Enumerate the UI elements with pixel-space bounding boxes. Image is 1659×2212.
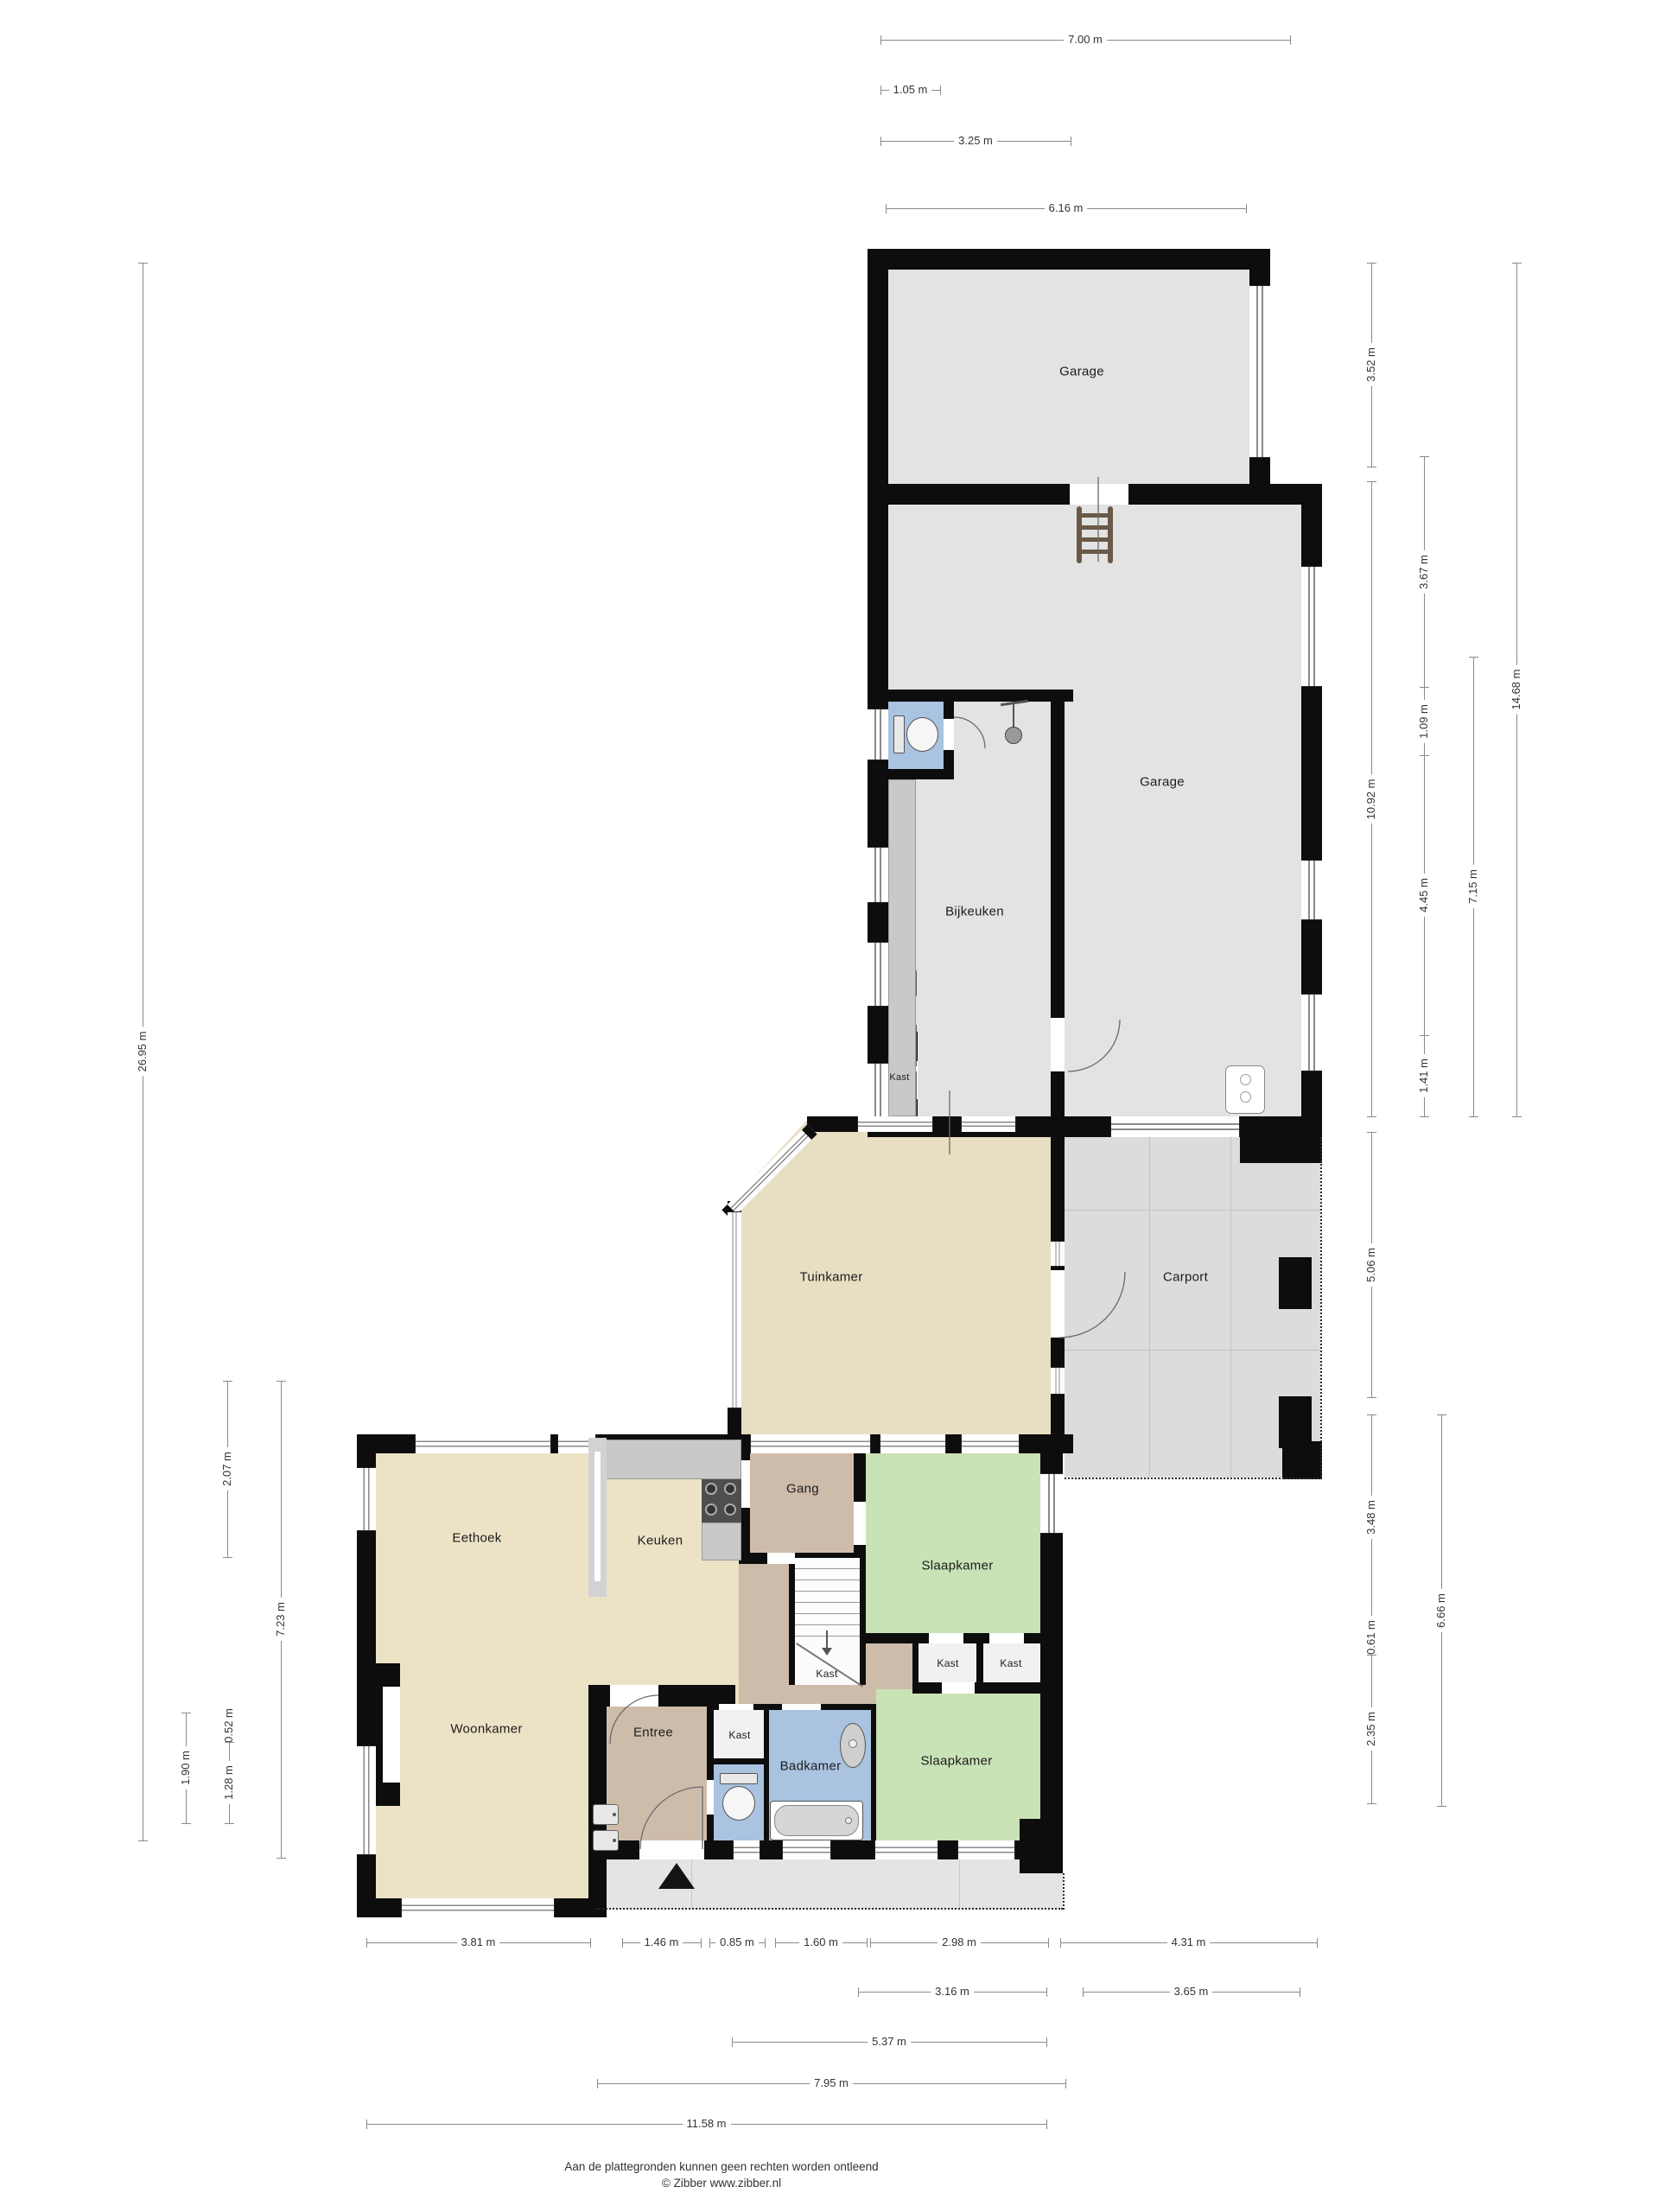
window [868,709,888,760]
grid-line [1065,1350,1320,1351]
entrance-arrow [658,1863,695,1889]
dimension-tick [870,1938,871,1948]
dimension-tick [276,1381,286,1382]
dimension-tick [1367,1132,1376,1133]
dimension-tick [225,1742,234,1743]
slaapkamer-1-floor [866,1453,1040,1633]
dimension-label: 1.05 m [889,83,932,97]
dimension-tick [1046,1987,1047,1997]
dotted-edge [596,1908,1063,1910]
fireplace-nook [376,1663,400,1806]
bathtub-icon [770,1801,863,1840]
wall [868,505,888,1116]
window [415,1434,551,1453]
dimension-label: 7.15 m [1466,865,1480,908]
dimension-tick [597,2079,598,2088]
dimension-tick [775,1938,776,1948]
wall [807,1116,1065,1132]
dimension-label: 10.92 m [1364,774,1378,823]
toilet-icon [893,715,940,753]
window [874,1840,938,1859]
dimension-tick [1437,1806,1446,1807]
grid-line [1065,1210,1320,1211]
dimension-tick [880,86,881,95]
dimension-label: 6.66 m [1434,1589,1448,1632]
dimension-tick [1046,2120,1047,2129]
dimension-tick [1367,1803,1376,1804]
room-label-kast-trap: Kast [816,1668,837,1680]
dimension-label: 1.09 m [1417,700,1431,743]
door-opening [929,1633,963,1643]
dimension-tick [590,1938,591,1948]
door-opening [854,1502,866,1545]
door-opening [707,1780,714,1815]
door-opening [1051,1270,1065,1338]
dimension-tick [276,1858,286,1859]
wall [868,249,888,505]
dimension-tick [1420,1116,1429,1117]
door-opening [767,1553,795,1564]
window [868,847,888,903]
window [357,1745,376,1855]
wall [789,1558,795,1685]
door-opening [989,1633,1024,1643]
wall [868,690,1073,702]
dimension-label: 2.07 m [220,1447,234,1491]
dimension-tick [622,1938,623,1948]
dimension-tick [1469,657,1478,658]
window [782,1840,831,1859]
dimension-label: 5.37 m [868,2035,911,2049]
wall [1051,1071,1065,1116]
dimension-tick [765,1938,766,1948]
dimension-tick [1512,263,1522,264]
window [1051,1367,1065,1395]
window [733,1840,760,1859]
dimension-tick [223,1381,232,1382]
dimension-tick [709,1938,710,1948]
room-label-carport: Carport [1163,1270,1208,1285]
dotted-edge [1320,1137,1322,1479]
wall [871,1704,876,1840]
window [961,1116,1016,1132]
dimension-tick [1367,1116,1376,1117]
dimension-tick [225,1823,234,1824]
dotted-edge [1065,1478,1322,1479]
dimension-tick [1048,1938,1049,1948]
garage-2-floor [888,505,1301,1116]
window [1110,1116,1240,1137]
dimension-tick [138,1840,148,1841]
dimension-tick [1046,2037,1047,2047]
dimension-label: 4.31 m [1167,1935,1211,1949]
dimension-label: 1.28 m [222,1761,236,1804]
floor-plan: GarageGarageBijkeukenKastTuinkamerCarpor… [0,0,1659,2212]
floor-plan-page: GarageGarageBijkeukenKastTuinkamerCarpor… [0,0,1659,2212]
window [728,1211,741,1408]
dimension-tick [181,1823,191,1824]
window [1249,285,1270,458]
window [401,1898,555,1917]
dimension-tick [1246,204,1247,213]
door-opening [1051,1018,1065,1071]
dimension-label: 2.98 m [938,1935,981,1949]
dimension-tick [867,1938,868,1948]
dimension-label: 4.45 m [1417,874,1431,917]
dimension-tick [1367,467,1376,467]
boiler-icon [1225,1065,1265,1114]
door-opening [639,1840,704,1859]
wall [868,484,1270,505]
dimension-tick [1420,1035,1429,1036]
dimension-label: 3.67 m [1417,550,1431,594]
footer: Aan de plattegronden kunnen geen rechten… [289,2158,1154,2191]
window [868,1063,888,1123]
dimension-label: 5.06 m [1364,1243,1378,1287]
room-label-bijkeuken: Bijkeuken [945,905,1004,919]
dimension-label: 1.60 m [799,1935,842,1949]
wall-cabinet-icon [593,1804,619,1825]
carport-post [1279,1396,1312,1448]
dimension-tick [880,137,881,146]
dimension-tick [138,263,148,264]
room-label-kast-bijkeuken: Kast [889,1072,909,1083]
dimension-label: 26.95 m [136,1027,149,1077]
window [1301,566,1322,687]
wall [1240,1116,1322,1163]
dimension-tick [366,2120,367,2129]
dimension-label: 1.41 m [1417,1054,1431,1097]
room-label-garage-2: Garage [1140,775,1185,790]
dimension-tick [1300,1987,1300,1997]
dimension-tick [1437,1414,1446,1415]
window [750,1434,871,1453]
room-label-kast-entree: Kast [728,1729,750,1741]
room-label-eethoek: Eethoek [452,1531,501,1546]
window [357,1467,376,1531]
window [957,1840,1015,1859]
kitchen-counter [888,779,916,1116]
wall-cabinet-icon [593,1830,619,1851]
room-label-keuken: Keuken [638,1534,683,1548]
wall [1270,484,1322,505]
dimension-tick [880,35,881,45]
dimension-label: 2.35 m [1364,1707,1378,1751]
room-label-garage-1: Garage [1059,365,1104,379]
footer-disclaimer: Aan de plattegronden kunnen geen rechten… [289,2158,1154,2175]
dimension-tick [1420,687,1429,688]
ladder-icon [1075,506,1115,563]
door-opening [719,1704,753,1710]
window [880,1434,946,1453]
dimension-label: 0.85 m [715,1935,759,1949]
chimney-divider [588,1438,607,1597]
wall [860,1558,866,1685]
window [1051,1241,1065,1267]
wall [912,1682,1040,1694]
door-opening [1070,484,1128,505]
room-label-slaapkamer-1: Slaapkamer [921,1559,993,1573]
dimension-tick [1071,137,1071,146]
wall [1051,690,1065,1018]
dimension-tick [1367,263,1376,264]
dimension-label: 0.52 m [222,1704,236,1747]
dimension-tick [940,86,941,95]
room-label-gang: Gang [786,1482,819,1497]
room-label-slaapkamer-2: Slaapkamer [920,1754,992,1769]
stove-icon [702,1479,741,1522]
window [961,1434,1020,1453]
wall [976,1643,983,1682]
dimension-tick [366,1938,367,1948]
dimension-label: 6.16 m [1045,201,1088,215]
washbasin-icon [840,1723,866,1768]
carport-post [1279,1257,1312,1309]
room-label-woonkamer: Woonkamer [450,1722,522,1737]
wall [912,1643,918,1682]
door-opening [782,1704,821,1710]
wall [764,1704,769,1840]
dimension-label: 3.16 m [931,1985,974,1999]
wall [1020,1819,1063,1873]
dimension-tick [1317,1938,1318,1948]
shower-icon [994,698,1035,750]
window [1301,860,1322,920]
dimension-label: 7.00 m [1064,33,1107,47]
kitchen-counter [702,1522,741,1560]
dimension-label: 1.46 m [640,1935,683,1949]
dimension-label: 3.25 m [954,134,997,148]
dimension-label: 1.90 m [179,1746,193,1789]
dimension-tick [223,1557,232,1558]
door-opening [610,1685,658,1707]
dimension-tick [181,1713,191,1713]
room-label-kast-1: Kast [937,1657,958,1669]
door-opening [944,719,954,750]
dimension-tick [858,1987,859,1997]
wall [707,1704,714,1840]
stairs [795,1558,860,1685]
room-label-badkamer: Badkamer [780,1759,842,1774]
dimension-tick [1512,1116,1522,1117]
dimension-tick [1367,1397,1376,1398]
dimension-tick [701,1938,702,1948]
dimension-tick [1065,2079,1066,2088]
dimension-label: 0.61 m [1364,1616,1378,1659]
dimension-tick [1367,1655,1376,1656]
dimension-tick [1420,456,1429,457]
door-opening [942,1682,975,1694]
dimension-tick [886,204,887,213]
grid-line [1230,1137,1231,1478]
dimension-tick [1469,1116,1478,1117]
dimension-tick [732,2037,733,2047]
dimension-label: 3.52 m [1364,343,1378,386]
dimension-label: 7.95 m [810,2076,853,2090]
toilet-icon [720,1773,758,1823]
dimension-label: 3.65 m [1170,1985,1213,1999]
room-label-entree: Entree [633,1726,673,1740]
room-label-kast-2: Kast [1000,1657,1021,1669]
dotted-edge [1063,1873,1065,1910]
dimension-tick [1060,1938,1061,1948]
window [1301,994,1322,1071]
wall [714,1758,764,1764]
window [1040,1473,1063,1534]
wall [868,249,1270,270]
room-label-tuinkamer: Tuinkamer [800,1270,863,1285]
dimension-label: 3.48 m [1364,1496,1378,1539]
footer-copyright: © Zibber www.zibber.nl [289,2175,1154,2191]
grid-line [959,1859,960,1908]
grid-line [1149,1137,1150,1478]
window [868,942,888,1007]
dimension-tick [1290,35,1291,45]
dimension-label: 11.58 m [682,2117,730,2131]
dimension-tick [1367,1414,1376,1415]
gang-floor [750,1453,854,1553]
dimension-tick [1420,755,1429,756]
kitchen-counter [593,1440,741,1479]
dimension-tick [1367,481,1376,482]
carport-post [1282,1441,1322,1479]
dimension-label: 14.68 m [1510,665,1523,715]
dimension-label: 3.81 m [457,1935,500,1949]
dimension-tick [1083,1987,1084,1997]
dimension-label: 7.23 m [274,1598,288,1641]
wall [888,769,954,779]
window [857,1116,933,1132]
